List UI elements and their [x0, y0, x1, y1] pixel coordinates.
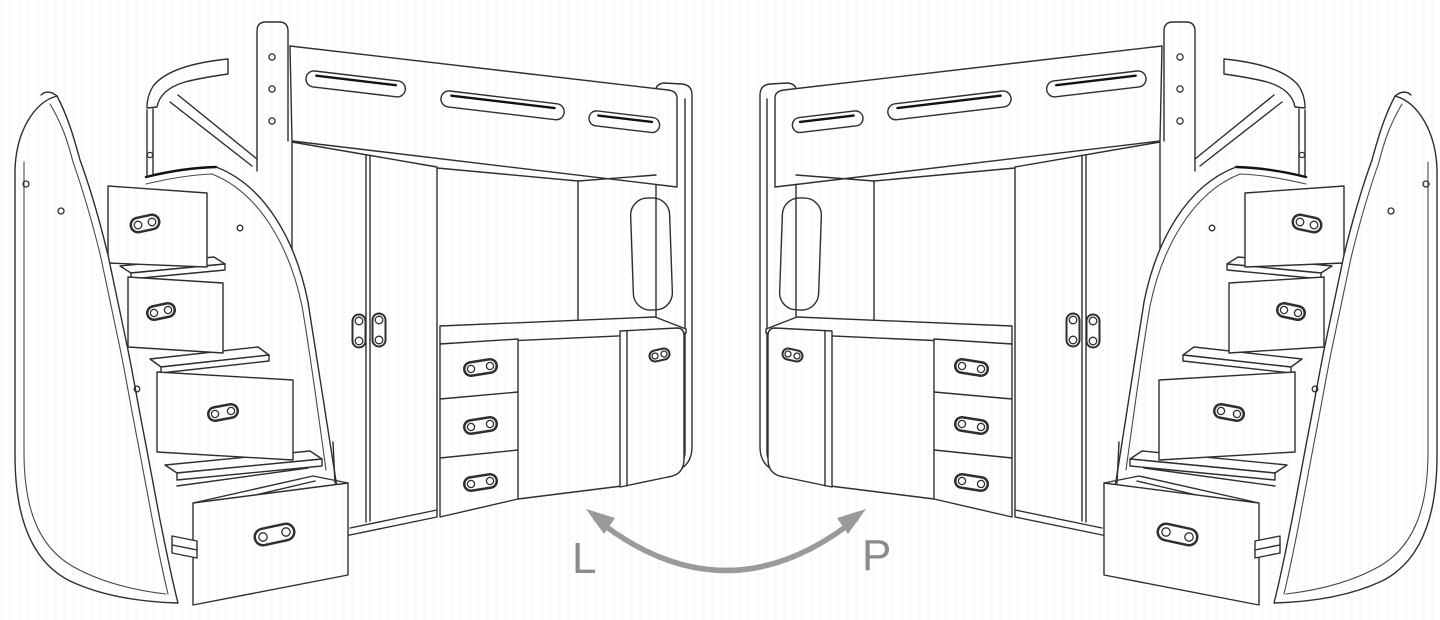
left-variant-label: L: [572, 534, 596, 583]
furniture-diagram: L P: [0, 0, 1440, 620]
swap-arrow-curve: [596, 519, 856, 571]
right-variant-label: P: [862, 531, 891, 580]
right-bed-unit: [760, 22, 1437, 605]
swap-arrow: [586, 509, 866, 571]
diagram-canvas: L P: [0, 0, 1440, 620]
left-bed-unit: [15, 22, 692, 605]
